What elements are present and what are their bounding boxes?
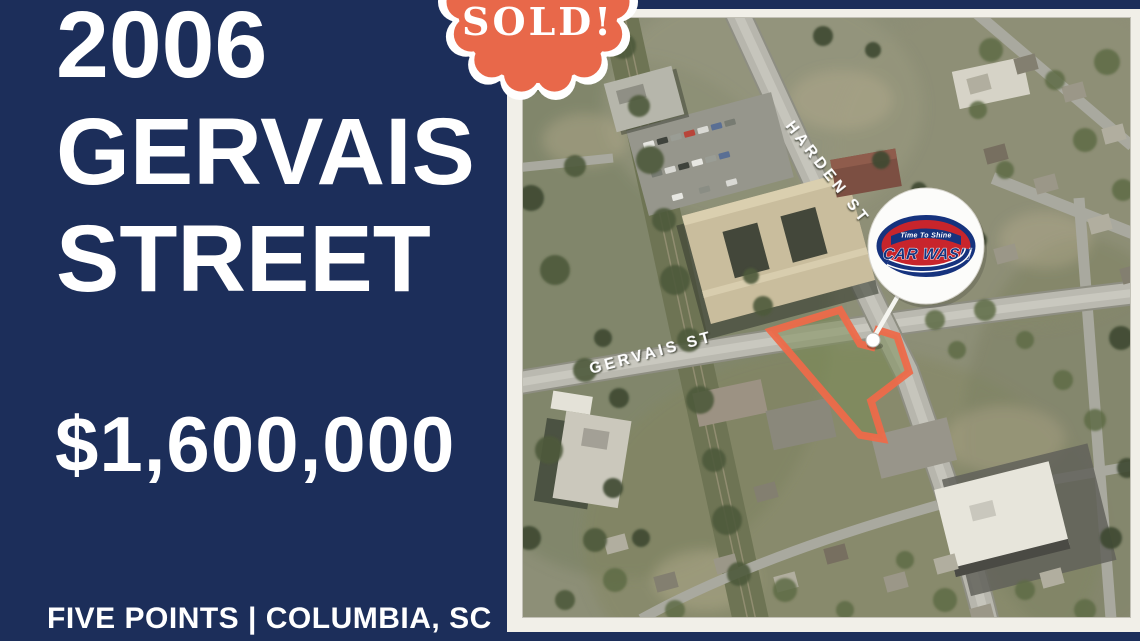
sold-badge: SOLD!	[426, 0, 650, 114]
marker-dot	[866, 333, 880, 347]
address-line-2: GERVAIS	[56, 99, 475, 206]
flyer-canvas: 2006 GERVAIS STREET $1,600,000 FIVE POIN…	[0, 0, 1140, 641]
property-address: 2006 GERVAIS STREET	[56, 0, 475, 313]
listing-price: $1,600,000	[55, 399, 455, 489]
address-line-1: 2006	[56, 0, 475, 99]
location-footer: FIVE POINTS | COLUMBIA, SC	[47, 601, 492, 637]
sold-badge-label: SOLD!	[462, 0, 614, 44]
address-line-3: STREET	[56, 206, 475, 313]
carwash-tagline: Time To Shine	[900, 233, 951, 240]
